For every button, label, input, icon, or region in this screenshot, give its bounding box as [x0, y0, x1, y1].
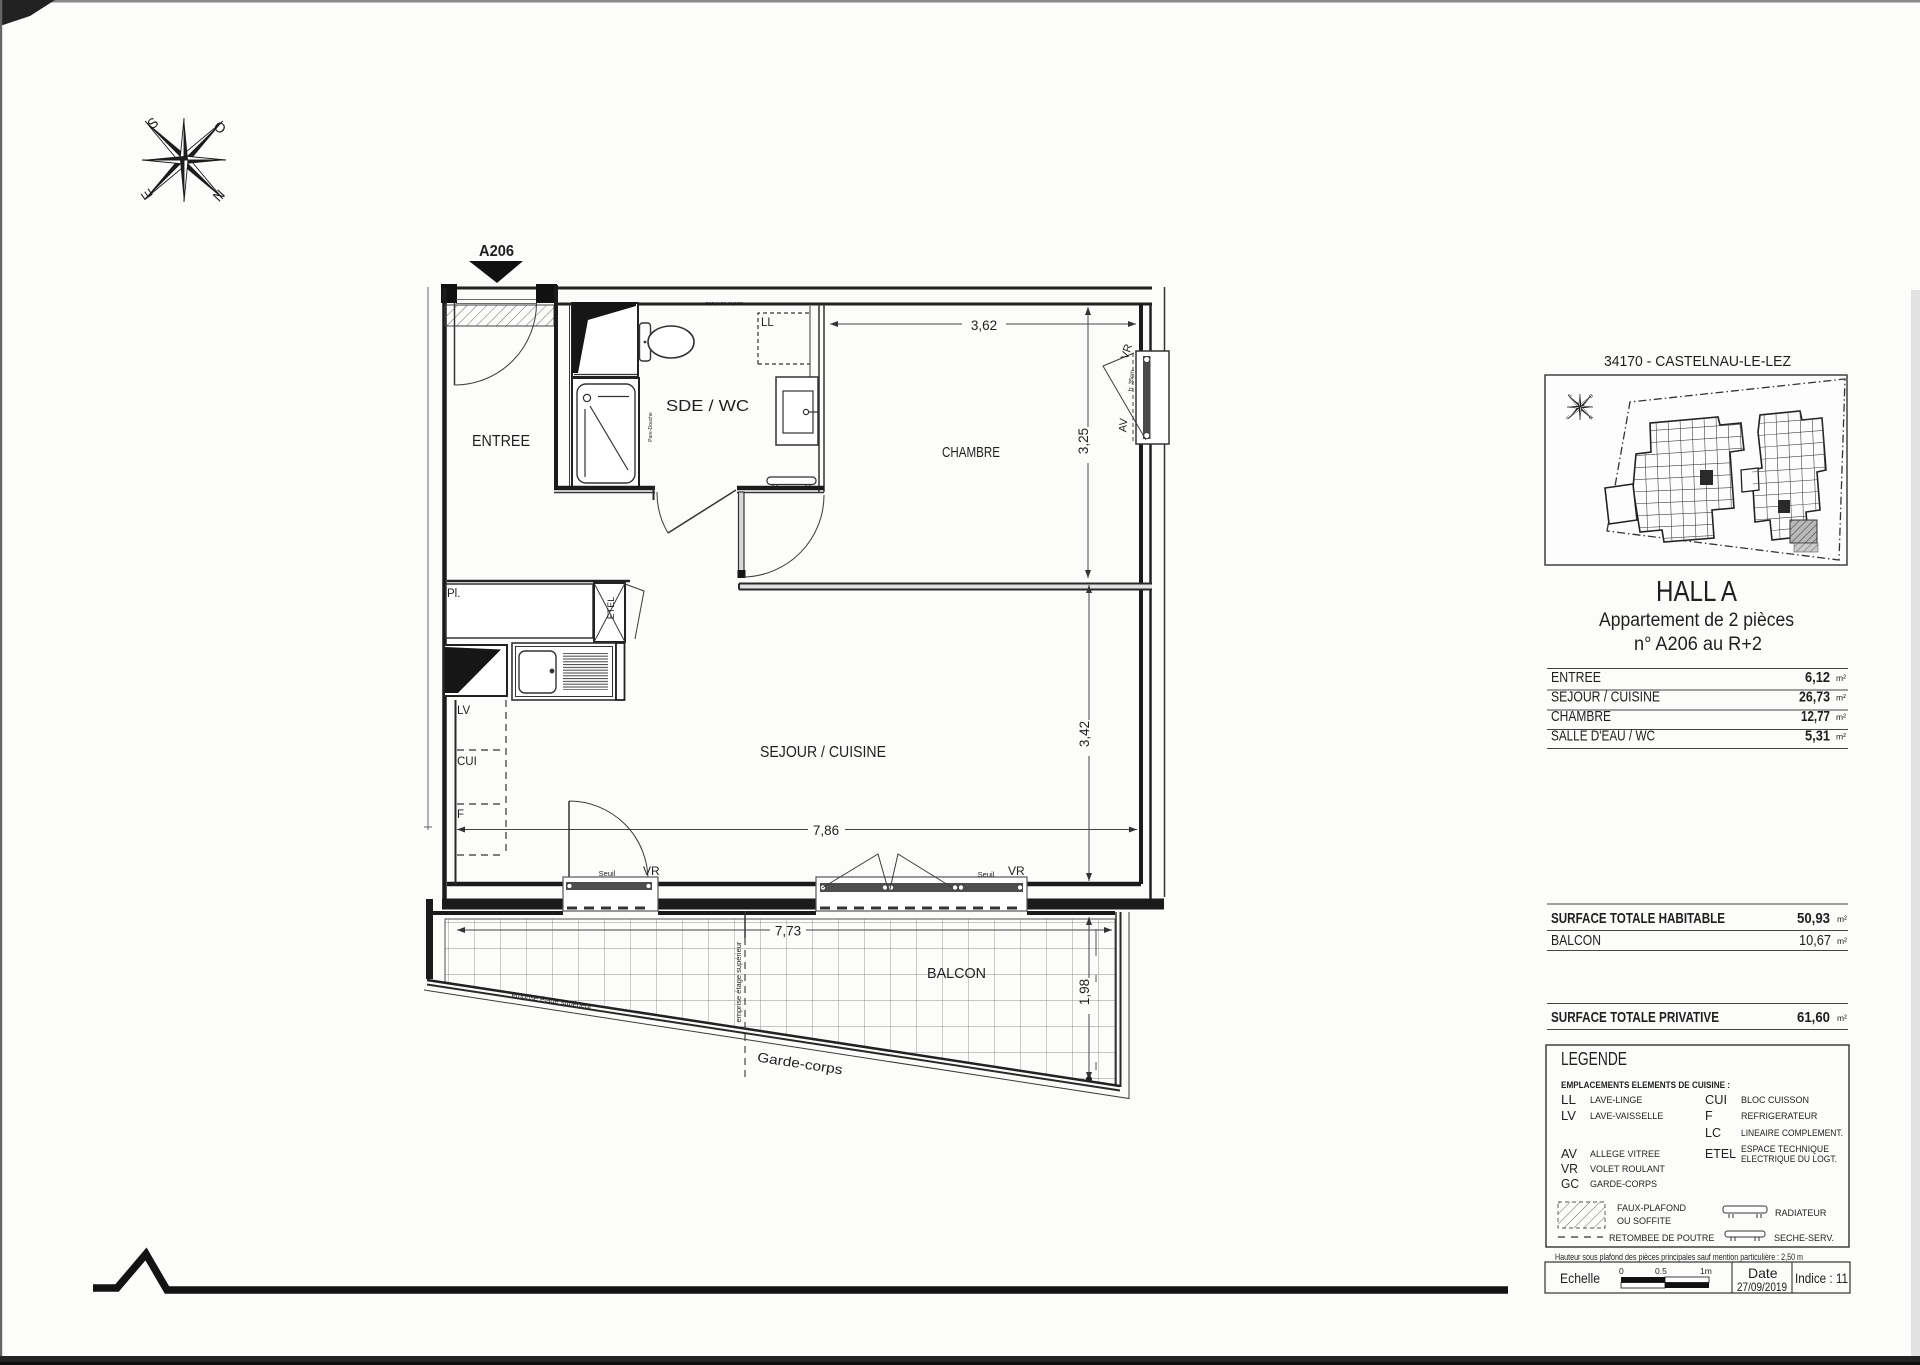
svg-text:SEJOUR / CUISINE: SEJOUR / CUISINE: [1551, 690, 1660, 706]
svg-text:REFRIGERATEUR: REFRIGERATEUR: [1741, 1111, 1818, 1121]
svg-text:Pl.: Pl.: [447, 588, 460, 600]
svg-text:0: 0: [1619, 1266, 1624, 1276]
svg-text:LV: LV: [1561, 1109, 1577, 1123]
svg-text:3,42: 3,42: [1077, 721, 1092, 747]
svg-text:VOLET ROULANT: VOLET ROULANT: [1590, 1164, 1665, 1174]
svg-text:SDE / WC: SDE / WC: [666, 398, 749, 415]
svg-text:VR: VR: [1008, 864, 1025, 878]
svg-text:BLOC CUISSON: BLOC CUISSON: [1741, 1095, 1809, 1105]
svg-text:m²: m²: [1837, 936, 1847, 946]
svg-text:BALCON: BALCON: [1551, 933, 1601, 949]
svg-text:n° A206 au R+2: n° A206 au R+2: [1634, 634, 1762, 655]
svg-text:CUI: CUI: [457, 756, 477, 768]
svg-text:seche-serviette: seche-serviette: [705, 300, 742, 306]
svg-text:m²: m²: [1836, 673, 1846, 683]
svg-text:Seuil: Seuil: [599, 869, 616, 878]
svg-text:emprise étage supérieur: emprise étage supérieur: [734, 941, 743, 1022]
svg-text:0.5: 0.5: [1655, 1266, 1667, 1276]
svg-text:F: F: [1705, 1109, 1713, 1123]
svg-text:10,67: 10,67: [1799, 933, 1831, 949]
svg-text:34170 - CASTELNAU-LE-LEZ: 34170 - CASTELNAU-LE-LEZ: [1604, 354, 1791, 370]
svg-text:AV: AV: [1561, 1147, 1578, 1161]
svg-text:GC: GC: [1561, 1177, 1579, 1191]
svg-text:LAVE-LINGE: LAVE-LINGE: [1590, 1095, 1642, 1105]
svg-text:FAUX-PLAFOND: FAUX-PLAFOND: [1617, 1203, 1687, 1213]
svg-text:LV: LV: [457, 705, 471, 717]
svg-text:LAVE-VAISSELLE: LAVE-VAISSELLE: [1590, 1111, 1663, 1121]
svg-text:6,12: 6,12: [1805, 670, 1830, 686]
svg-text:SECHE-SERV.: SECHE-SERV.: [1774, 1233, 1834, 1243]
svg-text:SURFACE TOTALE PRIVATIVE: SURFACE TOTALE PRIVATIVE: [1551, 1009, 1719, 1026]
svg-text:Indice : 11: Indice : 11: [1795, 1270, 1848, 1286]
svg-text:Echelle: Echelle: [1560, 1270, 1600, 1286]
svg-text:HALL A: HALL A: [1656, 576, 1738, 608]
svg-text:VR: VR: [1561, 1162, 1578, 1176]
svg-text:SEJOUR / CUISINE: SEJOUR / CUISINE: [760, 744, 886, 761]
svg-text:RADIATEUR: RADIATEUR: [1775, 1208, 1827, 1218]
svg-text:m²: m²: [1836, 693, 1846, 703]
svg-text:3,25: 3,25: [1076, 428, 1091, 454]
svg-text:GARDE-CORPS: GARDE-CORPS: [1590, 1179, 1657, 1189]
svg-text:7,73: 7,73: [775, 924, 801, 939]
svg-text:RETOMBEE DE POUTRE: RETOMBEE DE POUTRE: [1609, 1233, 1714, 1243]
svg-text:Seuil: Seuil: [978, 870, 995, 879]
svg-text:Appartement de 2 pièces: Appartement de 2 pièces: [1599, 610, 1794, 631]
svg-text:12,77: 12,77: [1801, 709, 1830, 725]
svg-text:27/09/2019: 27/09/2019: [1737, 1280, 1787, 1294]
svg-text:A206: A206: [479, 243, 514, 260]
svg-text:ETEL: ETEL: [1705, 1147, 1736, 1161]
svg-text:1m: 1m: [1700, 1266, 1712, 1276]
svg-text:m²: m²: [1836, 712, 1846, 722]
svg-text:OU SOFFITE: OU SOFFITE: [1617, 1216, 1671, 1226]
svg-text:5,31: 5,31: [1805, 729, 1830, 745]
svg-text:3,62: 3,62: [971, 318, 997, 333]
svg-text:ALLEGE VITREE: ALLEGE VITREE: [1590, 1149, 1660, 1159]
svg-text:Date: Date: [1748, 1265, 1778, 1281]
svg-text:VR: VR: [643, 864, 660, 878]
svg-text:m²: m²: [1837, 1013, 1847, 1023]
svg-text:ENTREE: ENTREE: [472, 433, 530, 450]
svg-text:ELECTRIQUE DU LOGT.: ELECTRIQUE DU LOGT.: [1741, 1154, 1837, 1164]
svg-text:50,93: 50,93: [1797, 910, 1830, 927]
svg-text:LINEAIRE COMPLEMENT.: LINEAIRE COMPLEMENT.: [1741, 1128, 1843, 1138]
svg-text:EMPLACEMENTS ELEMENTS DE CUISI: EMPLACEMENTS ELEMENTS DE CUISINE :: [1561, 1080, 1730, 1091]
svg-text:Pare-Douche: Pare-Douche: [648, 412, 654, 442]
svg-text:ESPACE TECHNIQUE: ESPACE TECHNIQUE: [1741, 1144, 1829, 1154]
svg-text:LL: LL: [1561, 1093, 1576, 1107]
svg-text:CHAMBRE: CHAMBRE: [1551, 709, 1611, 725]
svg-text:SURFACE TOTALE HABITABLE: SURFACE TOTALE HABITABLE: [1551, 910, 1725, 927]
svg-text:LL: LL: [761, 317, 774, 329]
svg-text:LEGENDE: LEGENDE: [1561, 1049, 1627, 1069]
svg-text:ETEL: ETEL: [606, 597, 616, 620]
svg-text:ENTREE: ENTREE: [1551, 670, 1601, 686]
svg-text:7,86: 7,86: [813, 823, 839, 838]
svg-text:LC: LC: [1705, 1126, 1721, 1140]
svg-text:61,60: 61,60: [1797, 1009, 1830, 1026]
svg-text:CHAMBRE: CHAMBRE: [942, 444, 1000, 461]
svg-text:CUI: CUI: [1705, 1093, 1727, 1107]
svg-text:AV: AV: [1117, 417, 1130, 433]
svg-text:BALCON: BALCON: [927, 965, 986, 982]
svg-text:26,73: 26,73: [1799, 690, 1830, 706]
svg-text:SALLE D'EAU / WC: SALLE D'EAU / WC: [1551, 729, 1655, 745]
svg-text:m²: m²: [1836, 732, 1846, 742]
svg-text:F: F: [457, 809, 464, 821]
svg-text:Hauteur sous plafond des pièce: Hauteur sous plafond des pièces principa…: [1555, 1252, 1803, 1263]
svg-text:1,98: 1,98: [1077, 979, 1092, 1005]
svg-text:m²: m²: [1837, 914, 1847, 924]
